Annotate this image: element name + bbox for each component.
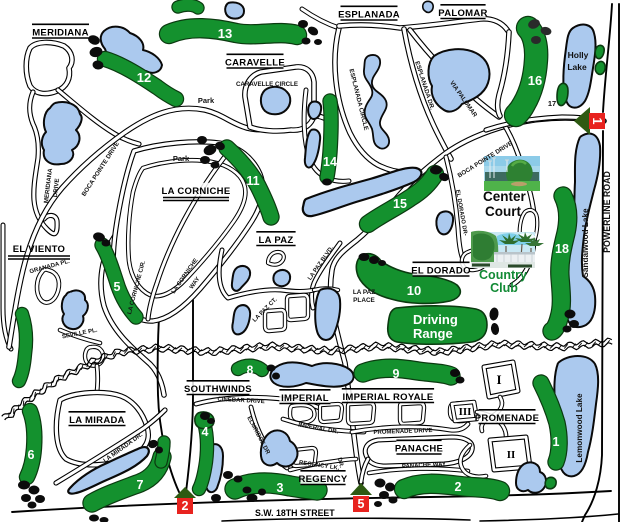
- svg-text:17: 17: [548, 99, 556, 108]
- svg-text:Park: Park: [173, 154, 190, 163]
- svg-text:I: I: [496, 372, 501, 387]
- svg-text:7: 7: [137, 478, 144, 492]
- svg-text:III: III: [459, 406, 472, 418]
- svg-text:16: 16: [528, 73, 542, 88]
- svg-text:EL VIENTO: EL VIENTO: [13, 244, 66, 255]
- svg-text:EL DORADO: EL DORADO: [411, 266, 471, 277]
- svg-text:10: 10: [407, 283, 421, 298]
- svg-text:CARAVELLE: CARAVELLE: [225, 58, 285, 69]
- svg-text:REGENCY: REGENCY: [298, 474, 347, 485]
- svg-text:6: 6: [28, 448, 35, 462]
- svg-text:5: 5: [114, 280, 121, 294]
- svg-text:S.W. 18TH STREET: S.W. 18TH STREET: [255, 508, 335, 518]
- svg-text:LA PAZ: LA PAZ: [353, 289, 375, 296]
- svg-text:9: 9: [393, 367, 400, 381]
- svg-text:PLACE: PLACE: [353, 297, 375, 304]
- svg-text:ESPLANADA: ESPLANADA: [338, 10, 400, 21]
- svg-text:SOUTHWINDS: SOUTHWINDS: [184, 384, 252, 395]
- svg-text:1: 1: [590, 118, 604, 125]
- svg-text:CARAVELLE CIRCLE: CARAVELLE CIRCLE: [236, 81, 298, 88]
- svg-text:IMPERIAL: IMPERIAL: [281, 393, 329, 404]
- svg-text:PROMENADE: PROMENADE: [475, 413, 539, 424]
- svg-text:1: 1: [553, 435, 560, 449]
- svg-text:11: 11: [246, 174, 259, 188]
- svg-text:2: 2: [455, 480, 462, 494]
- svg-text:Center: Center: [483, 189, 527, 204]
- svg-text:12: 12: [137, 70, 151, 85]
- svg-text:PALOMAR: PALOMAR: [438, 8, 487, 19]
- svg-text:Park: Park: [198, 96, 215, 105]
- svg-text:13: 13: [218, 26, 232, 41]
- svg-text:18: 18: [555, 242, 569, 256]
- svg-text:MERIDIANA: MERIDIANA: [32, 28, 89, 39]
- svg-text:II: II: [507, 449, 516, 461]
- svg-text:5: 5: [358, 497, 365, 511]
- svg-text:8: 8: [247, 363, 254, 377]
- svg-text:4: 4: [202, 425, 209, 439]
- svg-text:Country: Country: [479, 268, 527, 282]
- svg-text:3: 3: [277, 481, 284, 495]
- svg-text:POWERLINE ROAD: POWERLINE ROAD: [602, 171, 612, 253]
- svg-text:PANACHE: PANACHE: [395, 444, 443, 455]
- svg-text:15: 15: [393, 197, 407, 211]
- svg-text:Holly: Holly: [568, 50, 589, 60]
- svg-text:14: 14: [323, 155, 337, 169]
- svg-text:IMPERIAL ROYALE: IMPERIAL ROYALE: [342, 392, 433, 403]
- svg-text:Club: Club: [490, 281, 518, 295]
- svg-text:Lemonwood Lake: Lemonwood Lake: [575, 393, 584, 463]
- svg-text:Court: Court: [485, 204, 521, 219]
- svg-text:2: 2: [182, 499, 189, 513]
- svg-text:LA MIRADA: LA MIRADA: [69, 415, 125, 426]
- svg-text:Lake: Lake: [567, 62, 587, 72]
- svg-text:LA PAZ: LA PAZ: [258, 235, 293, 246]
- svg-text:LA CORNICHE: LA CORNICHE: [162, 186, 231, 197]
- svg-text:Driving: Driving: [413, 312, 458, 327]
- svg-text:Range: Range: [413, 326, 453, 341]
- svg-text:Sandalwood Lake: Sandalwood Lake: [581, 208, 590, 278]
